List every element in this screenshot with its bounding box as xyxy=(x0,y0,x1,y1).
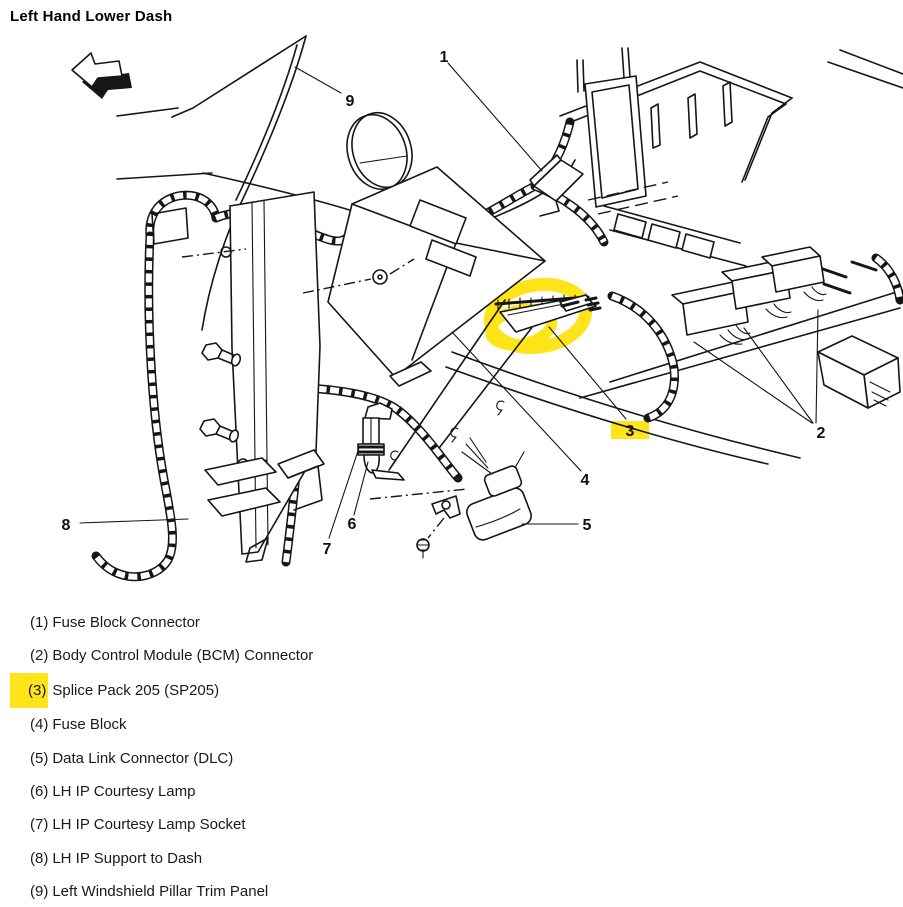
legend-item: (6)LH IP Courtesy Lamp xyxy=(30,775,313,808)
callout-9: 9 xyxy=(346,93,355,110)
legend: (1)Fuse Block Connector (2)Body Control … xyxy=(30,606,313,907)
legend-item-number: (8) xyxy=(30,842,48,875)
right-small-module xyxy=(818,336,900,408)
dlc-connector xyxy=(417,438,534,558)
diagram-canvas: 1 2 3 4 5 6 7 8 9 xyxy=(0,0,903,600)
callout-3: 3 xyxy=(626,423,635,440)
callout-7: 7 xyxy=(323,541,332,558)
legend-item-label: LH IP Support to Dash xyxy=(52,850,202,867)
legend-item-label: Body Control Module (BCM) Connector xyxy=(52,647,313,664)
dlc-bracket xyxy=(428,496,460,538)
page: Left Hand Lower Dash xyxy=(0,0,903,907)
upper-right-structure xyxy=(560,48,903,408)
legend-item: (5)Data Link Connector (DLC) xyxy=(30,742,313,775)
legend-item-number: (9) xyxy=(30,875,48,907)
callout-6: 6 xyxy=(348,516,357,533)
bcm-connectors xyxy=(672,247,826,344)
direction-arrow-icon xyxy=(72,53,132,99)
legend-item-label: Fuse Block xyxy=(52,716,126,733)
legend-item-number: (7) xyxy=(30,808,48,841)
legend-item: (9)Left Windshield Pillar Trim Panel xyxy=(30,875,313,907)
legend-item-number: (4) xyxy=(30,708,48,741)
legend-item: (7)LH IP Courtesy Lamp Socket xyxy=(30,808,313,841)
legend-item-number: (3) xyxy=(10,673,48,708)
callout-5: 5 xyxy=(583,517,592,534)
legend-item: (4)Fuse Block xyxy=(30,708,313,741)
legend-item-label: Left Windshield Pillar Trim Panel xyxy=(52,883,268,900)
callout-4: 4 xyxy=(581,472,590,489)
legend-item: (8)LH IP Support to Dash xyxy=(30,842,313,875)
legend-item-number: (1) xyxy=(30,606,48,639)
hex-stud xyxy=(200,419,240,443)
screw xyxy=(417,539,429,558)
callout-2: 2 xyxy=(817,425,826,442)
legend-item: (2)Body Control Module (BCM) Connector xyxy=(30,639,313,672)
legend-item: (3)Splice Pack 205 (SP205) xyxy=(30,673,313,708)
legend-item-number: (6) xyxy=(30,775,48,808)
legend-item-label: Splice Pack 205 (SP205) xyxy=(52,682,219,699)
legend-item-label: Data Link Connector (DLC) xyxy=(52,750,233,767)
legend-item-label: LH IP Courtesy Lamp xyxy=(52,783,195,800)
legend-item-number: (5) xyxy=(30,742,48,775)
legend-item: (1)Fuse Block Connector xyxy=(30,606,313,639)
legend-item-label: Fuse Block Connector xyxy=(52,614,200,631)
callout-8: 8 xyxy=(62,517,71,534)
callout-1: 1 xyxy=(440,49,449,66)
ip-support-structure xyxy=(152,192,324,562)
legend-item-number: (2) xyxy=(30,639,48,672)
left-harness xyxy=(96,195,216,577)
legend-item-label: LH IP Courtesy Lamp Socket xyxy=(52,816,245,833)
